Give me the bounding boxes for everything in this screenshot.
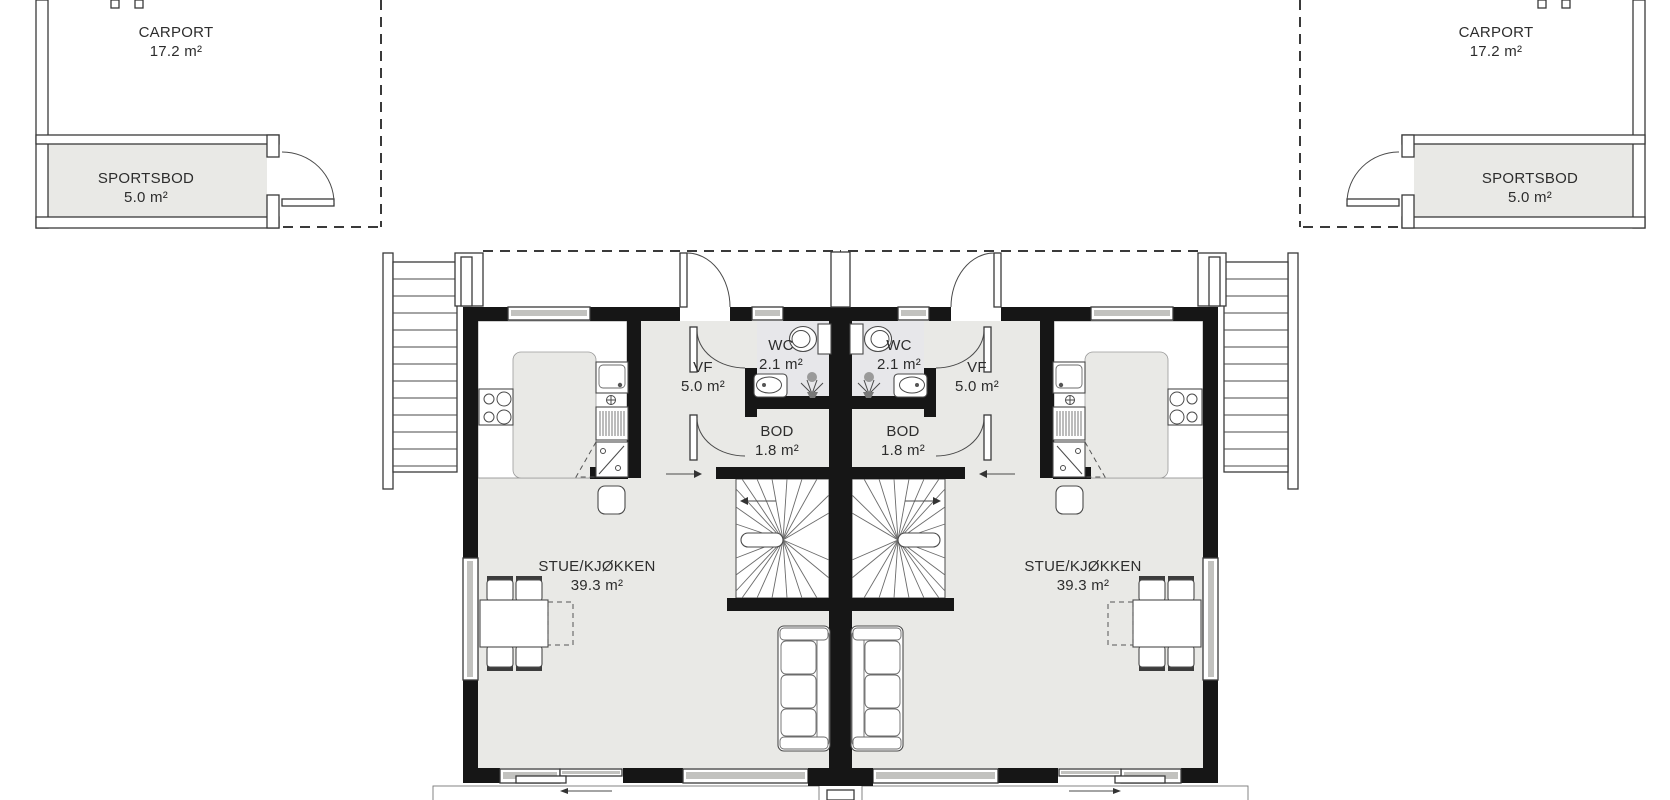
party-wall-screen: [831, 252, 850, 307]
terrace-post: [827, 790, 854, 800]
room-label-sportsbod-right: SPORTSBOD 5.0 m²: [1482, 170, 1578, 207]
room-label-wc-right: WC 2.1 m²: [877, 337, 921, 374]
room-label-bod-right: BOD 1.8 m²: [881, 423, 925, 460]
room-label-living-right: STUE/KJØKKEN 39.3 m²: [1024, 558, 1141, 595]
floor-plan-graphics: [0, 0, 1670, 800]
room-label-vf-left: VF 5.0 m²: [681, 359, 725, 396]
party-wall-foot: [808, 768, 873, 786]
room-label-living-left: STUE/KJØKKEN 39.3 m²: [538, 558, 655, 595]
room-label-carport-left: CARPORT 17.2 m²: [139, 24, 214, 61]
room-label-wc-left: WC 2.1 m²: [759, 337, 803, 374]
floor-plan-canvas: CARPORT 17.2 m² SPORTSBOD 5.0 m² CARPORT…: [0, 0, 1670, 800]
room-label-vf-right: VF 5.0 m²: [955, 359, 999, 396]
room-label-bod-left: BOD 1.8 m²: [755, 423, 799, 460]
room-label-carport-right: CARPORT 17.2 m²: [1459, 24, 1534, 61]
room-label-sportsbod-left: SPORTSBOD 5.0 m²: [98, 170, 194, 207]
